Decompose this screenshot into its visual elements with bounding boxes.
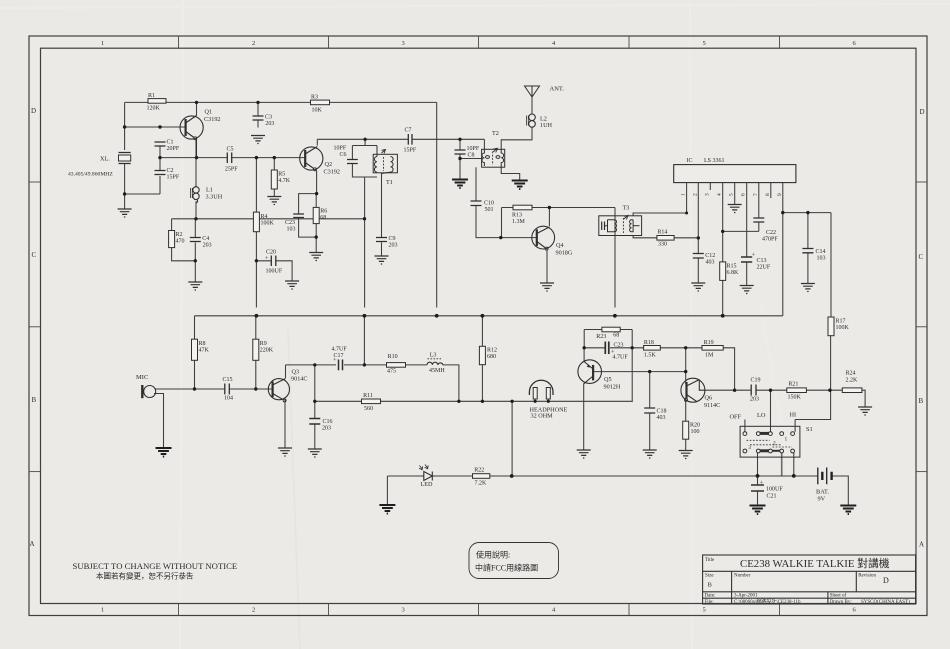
svg-text:SYSCO(CHINA EAST): SYSCO(CHINA EAST) — [861, 600, 910, 605]
svg-text:本圖若有變更，恕不另行㳟吿: 本圖若有變更，恕不另行㳟吿 — [96, 571, 194, 581]
svg-text:501: 501 — [485, 207, 494, 213]
svg-text:C19: C19 — [751, 378, 761, 384]
svg-text:3: 3 — [402, 40, 405, 47]
svg-text:2: 2 — [692, 193, 698, 196]
svg-text:T3: T3 — [623, 205, 630, 212]
svg-text:C13: C13 — [757, 258, 767, 264]
svg-text:1: 1 — [681, 193, 687, 196]
svg-text:Revision: Revision — [858, 574, 876, 579]
svg-text:10PF: 10PF — [334, 146, 347, 152]
svg-text:R20: R20 — [690, 423, 700, 429]
svg-text:IC: IC — [687, 158, 693, 164]
svg-text:68: 68 — [613, 333, 619, 339]
svg-text:L3: L3 — [430, 353, 437, 359]
svg-text:20PF: 20PF — [167, 146, 180, 152]
svg-text:CE238 WALKIE TALKIE 對講機: CE238 WALKIE TALKIE 對講機 — [740, 556, 890, 570]
svg-text:5: 5 — [703, 607, 706, 614]
svg-text:4.7K: 4.7K — [278, 178, 291, 184]
svg-text:2: 2 — [252, 607, 255, 614]
svg-text:R21: R21 — [788, 382, 798, 388]
svg-text:25PF: 25PF — [225, 167, 238, 173]
svg-text:+: + — [611, 349, 615, 356]
svg-text:470PF: 470PF — [762, 237, 778, 243]
svg-text:R12: R12 — [487, 348, 497, 354]
svg-text:R2: R2 — [176, 232, 183, 238]
svg-text:LO: LO — [757, 412, 766, 419]
svg-text:R13: R13 — [512, 213, 522, 219]
svg-text:C9: C9 — [389, 236, 396, 242]
svg-text:Q4: Q4 — [556, 242, 564, 249]
svg-text:120K: 120K — [147, 106, 161, 112]
svg-text:C: C — [919, 253, 924, 261]
svg-text:C3192: C3192 — [324, 169, 341, 176]
svg-text:R5: R5 — [278, 172, 285, 178]
svg-text:103: 103 — [817, 256, 826, 262]
svg-text:3: 3 — [402, 607, 405, 614]
svg-text:6: 6 — [741, 193, 747, 196]
svg-text:9114C: 9114C — [704, 402, 720, 409]
svg-text:100UF: 100UF — [766, 487, 783, 493]
svg-text:Drawn By:: Drawn By: — [830, 600, 852, 605]
svg-text:10PF: 10PF — [467, 146, 480, 152]
svg-text:R17: R17 — [836, 319, 846, 325]
svg-text:R9: R9 — [260, 341, 267, 347]
svg-text:3.3UH: 3.3UH — [206, 194, 223, 201]
svg-text:A: A — [919, 541, 924, 549]
svg-text:B: B — [708, 582, 713, 589]
svg-text:R15: R15 — [727, 264, 737, 270]
svg-text:9018G: 9018G — [556, 250, 573, 257]
svg-text:7: 7 — [753, 193, 759, 196]
svg-text:203: 203 — [203, 243, 212, 249]
svg-text:C: C — [32, 251, 37, 259]
svg-text:1UH: 1UH — [540, 122, 553, 129]
svg-text:SUBJECT TO CHANGE WITHOUT NOTI: SUBJECT TO CHANGE WITHOUT NOTICE — [73, 561, 238, 571]
svg-text:+: + — [752, 252, 756, 259]
svg-text:C16: C16 — [323, 419, 333, 425]
svg-text:45MH: 45MH — [429, 368, 445, 374]
svg-text:C23: C23 — [614, 343, 624, 349]
svg-text:Title: Title — [705, 558, 715, 563]
svg-text:5: 5 — [703, 40, 706, 47]
svg-text:330: 330 — [658, 242, 667, 248]
svg-text:R22: R22 — [474, 468, 484, 474]
svg-text:100K: 100K — [836, 325, 850, 331]
svg-text:R23: R23 — [596, 334, 606, 340]
svg-text:5: 5 — [729, 193, 735, 196]
svg-text:15PF: 15PF — [167, 175, 180, 181]
svg-text:1M: 1M — [705, 353, 714, 359]
svg-text:68: 68 — [320, 215, 326, 221]
svg-text:L1: L1 — [206, 187, 213, 194]
svg-text:3: 3 — [748, 445, 751, 451]
svg-text:2: 2 — [252, 40, 255, 47]
svg-text:560: 560 — [364, 406, 373, 412]
svg-text:9012H: 9012H — [604, 384, 621, 391]
svg-text:475: 475 — [387, 369, 396, 375]
svg-text:203: 203 — [265, 121, 274, 127]
svg-text:C4: C4 — [202, 236, 209, 242]
svg-text:A: A — [30, 540, 35, 548]
svg-text:R8: R8 — [199, 341, 206, 347]
svg-text:C21: C21 — [767, 494, 777, 500]
svg-text:Q5: Q5 — [604, 376, 612, 383]
svg-text:+: + — [333, 357, 337, 364]
svg-text:R1: R1 — [148, 93, 155, 99]
svg-text:1: 1 — [785, 437, 788, 443]
svg-text:100: 100 — [691, 429, 700, 435]
svg-text:203: 203 — [750, 397, 759, 403]
svg-text:C7: C7 — [405, 128, 412, 134]
svg-text:Sheet of: Sheet of — [830, 594, 847, 599]
svg-text:32 OHM: 32 OHM — [531, 413, 554, 420]
svg-text:R14: R14 — [657, 230, 667, 236]
svg-text:9: 9 — [777, 193, 783, 196]
svg-text:104: 104 — [224, 396, 233, 402]
svg-text:MIC: MIC — [136, 374, 148, 381]
svg-text:C2: C2 — [167, 168, 174, 174]
svg-text:C8: C8 — [468, 153, 475, 159]
svg-text:C:\08060a\線路設計\CE238-11b: C:\08060a\線路設計\CE238-11b — [734, 598, 801, 605]
svg-text:C10: C10 — [484, 201, 494, 207]
svg-text:1: 1 — [101, 40, 104, 47]
svg-text:ANT.: ANT. — [550, 86, 565, 93]
svg-text:R3: R3 — [311, 95, 318, 101]
svg-text:Date:: Date: — [705, 594, 716, 599]
svg-text:4: 4 — [717, 193, 723, 196]
svg-text:Q3: Q3 — [292, 369, 300, 376]
svg-text:+: + — [265, 255, 269, 262]
svg-text:R19: R19 — [704, 340, 714, 346]
svg-text:9V: 9V — [818, 496, 826, 503]
svg-text:103: 103 — [287, 227, 296, 233]
svg-text:Q6: Q6 — [705, 395, 713, 402]
svg-text:680: 680 — [487, 354, 496, 360]
svg-text:6.8K: 6.8K — [727, 270, 740, 276]
svg-text:Q2: Q2 — [325, 161, 333, 168]
svg-text:C18: C18 — [657, 409, 667, 415]
svg-text:XL.: XL. — [100, 156, 110, 163]
svg-text:B: B — [32, 396, 37, 404]
svg-text:C23: C23 — [285, 220, 295, 226]
svg-text:8: 8 — [765, 193, 771, 196]
svg-text:C6: C6 — [340, 152, 347, 158]
svg-text:22UF: 22UF — [757, 265, 771, 271]
svg-text:R11: R11 — [363, 393, 373, 399]
svg-text:100UF: 100UF — [266, 269, 283, 275]
svg-text:OFF: OFF — [730, 414, 742, 421]
svg-text:T1: T1 — [386, 179, 393, 186]
svg-text:R18: R18 — [644, 340, 654, 346]
svg-text:Q1: Q1 — [205, 109, 213, 116]
svg-text:R4: R4 — [261, 214, 268, 220]
svg-text:4.7UF: 4.7UF — [332, 347, 348, 353]
svg-text:HI: HI — [790, 412, 797, 419]
svg-text:7.2K: 7.2K — [475, 481, 488, 487]
svg-text:Size: Size — [705, 574, 714, 579]
svg-text:403: 403 — [657, 415, 666, 421]
svg-text:9014C: 9014C — [291, 376, 308, 383]
svg-text:R6: R6 — [320, 209, 327, 215]
svg-text:1: 1 — [101, 607, 104, 614]
svg-text:1.5K: 1.5K — [644, 353, 657, 359]
svg-text:10K: 10K — [312, 108, 323, 114]
svg-text:150K: 150K — [788, 395, 802, 401]
svg-text:1.3M: 1.3M — [512, 219, 526, 225]
svg-text:LED: LED — [421, 481, 434, 488]
svg-text:C12: C12 — [705, 253, 715, 259]
svg-text:3-Apr-2001: 3-Apr-2001 — [734, 594, 758, 599]
svg-text:15PF: 15PF — [404, 148, 417, 154]
svg-text:2.2K: 2.2K — [846, 378, 859, 384]
svg-text:D: D — [920, 108, 925, 116]
svg-text:203: 203 — [389, 243, 398, 249]
svg-text:4.7UF: 4.7UF — [613, 355, 629, 361]
svg-text:C5: C5 — [227, 147, 234, 153]
svg-text:220K: 220K — [260, 348, 274, 354]
svg-text:BAT.: BAT. — [816, 489, 829, 496]
svg-text:470: 470 — [176, 239, 185, 245]
svg-text:C22: C22 — [766, 230, 776, 236]
svg-text:D: D — [31, 107, 36, 115]
svg-text:Number: Number — [734, 574, 751, 579]
svg-text:43.405/49.860MHZ: 43.405/49.860MHZ — [68, 172, 113, 178]
svg-text:C3: C3 — [265, 115, 272, 121]
svg-text:中請FCC用線路圖: 中請FCC用線路圖 — [475, 563, 538, 573]
svg-text:B: B — [919, 397, 924, 405]
svg-text:+: + — [760, 480, 764, 487]
svg-text:C15: C15 — [223, 377, 233, 383]
svg-text:3: 3 — [704, 193, 710, 196]
svg-text:2: 2 — [773, 440, 776, 446]
svg-text:LS 3361: LS 3361 — [704, 158, 725, 164]
svg-text:403: 403 — [706, 260, 715, 266]
svg-text:203: 203 — [322, 426, 331, 432]
svg-text:C14: C14 — [816, 249, 826, 255]
svg-text:D: D — [883, 576, 889, 585]
svg-text:47K: 47K — [199, 348, 210, 354]
svg-text:S1: S1 — [806, 426, 813, 433]
svg-text:R10: R10 — [388, 354, 398, 360]
svg-text:R24: R24 — [846, 371, 856, 377]
svg-text:100K: 100K — [261, 221, 275, 227]
svg-text:C1: C1 — [167, 140, 174, 146]
svg-text:C3192: C3192 — [204, 116, 221, 123]
svg-text:T2: T2 — [492, 130, 499, 137]
svg-text:使用說明:: 使用說明: — [476, 550, 510, 560]
svg-text:File:: File: — [705, 600, 714, 605]
